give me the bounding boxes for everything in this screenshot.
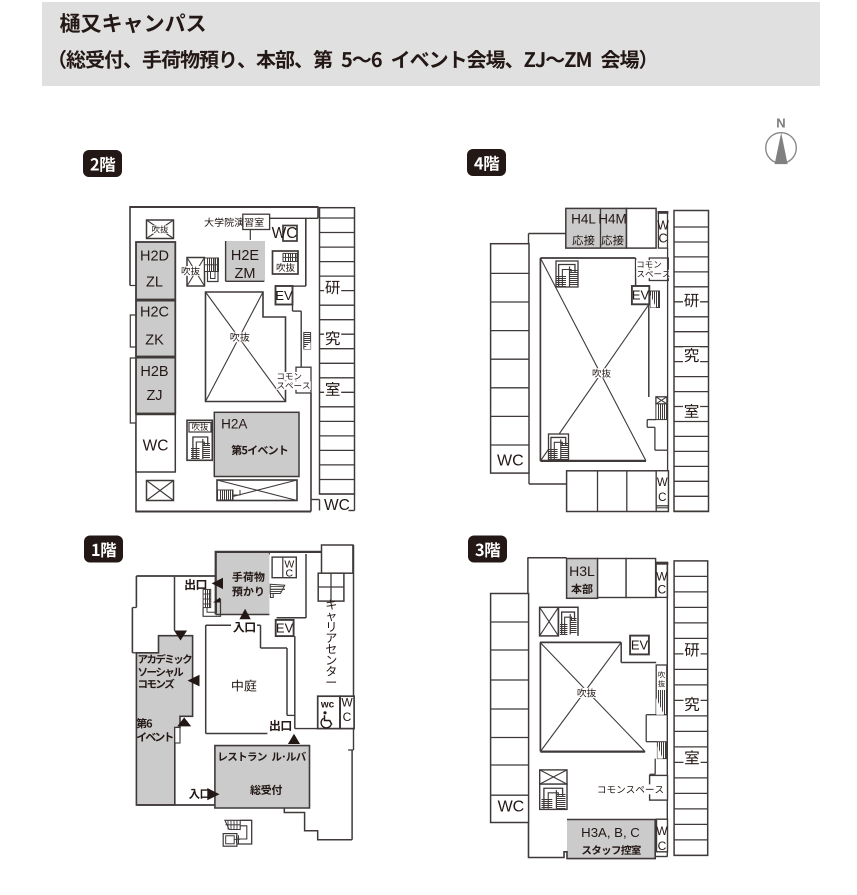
svg-text:H4L: H4L	[571, 212, 596, 227]
svg-text:WC: WC	[498, 799, 525, 816]
svg-text:W: W	[656, 824, 668, 838]
svg-text:wc: wc	[320, 700, 335, 711]
svg-text:W: W	[657, 219, 669, 233]
svg-text:H2D: H2D	[140, 249, 169, 265]
svg-text:C: C	[658, 492, 666, 504]
svg-text:C: C	[343, 710, 352, 724]
svg-text:WC: WC	[143, 438, 169, 455]
svg-text:C: C	[657, 583, 666, 597]
svg-text:ZL: ZL	[146, 275, 163, 291]
svg-text:ZM: ZM	[235, 266, 256, 282]
svg-text:H4M: H4M	[598, 212, 627, 227]
svg-text:EV: EV	[276, 621, 294, 636]
svg-text:WC: WC	[324, 497, 350, 514]
svg-text:EV: EV	[275, 288, 293, 303]
svg-text:H2B: H2B	[140, 364, 168, 380]
svg-text:H2A: H2A	[221, 416, 247, 431]
svg-text:H2E: H2E	[231, 248, 260, 264]
svg-text:WC: WC	[272, 225, 298, 242]
svg-text:W: W	[656, 570, 668, 584]
svg-text:C: C	[658, 232, 667, 246]
svg-text:ZK: ZK	[145, 333, 164, 349]
svg-text:W: W	[341, 696, 353, 710]
svg-text:W: W	[657, 477, 668, 489]
svg-text:EV: EV	[631, 638, 649, 653]
svg-text:C: C	[658, 839, 667, 853]
svg-text:EV: EV	[632, 288, 650, 303]
svg-text:H3A, B, C: H3A, B, C	[581, 825, 640, 840]
svg-text:H3L: H3L	[569, 563, 595, 579]
svg-text:H2C: H2C	[140, 305, 169, 321]
svg-text:WC: WC	[497, 453, 524, 470]
svg-text:N: N	[776, 116, 785, 131]
svg-text:C: C	[286, 568, 294, 580]
svg-text:ZJ: ZJ	[146, 388, 162, 404]
